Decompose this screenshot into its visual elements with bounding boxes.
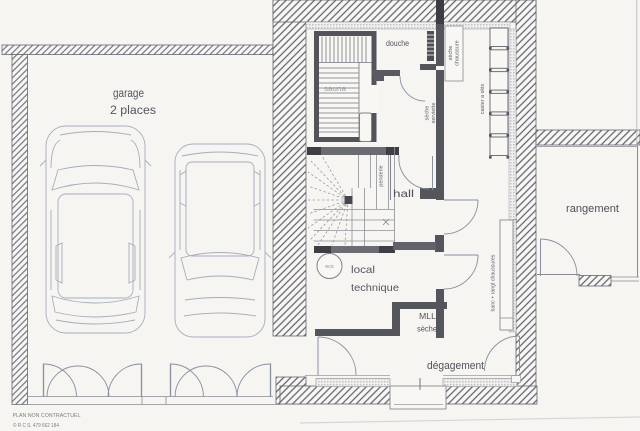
svg-text:dégagement: dégagement <box>427 360 484 372</box>
svg-text:rangement: rangement <box>566 203 619 215</box>
svg-text:2 places: 2 places <box>110 105 156 117</box>
svg-text:sèche: sèche <box>417 325 438 334</box>
svg-text:ecs: ecs <box>325 264 334 270</box>
svg-text:banc + rangt chaussures: banc + rangt chaussures <box>491 254 497 311</box>
svg-text:serviette: serviette <box>431 103 437 124</box>
svg-text:hall: hall <box>393 189 414 200</box>
svg-text:chaussure: chaussure <box>455 40 461 65</box>
svg-text:garage: garage <box>113 88 144 100</box>
svg-text:sèche: sèche <box>425 106 431 121</box>
svg-text:local: local <box>351 264 375 276</box>
svg-text:MLL: MLL <box>419 312 437 321</box>
svg-text:technique: technique <box>351 282 399 294</box>
svg-text:© R C S. 479 662 184: © R C S. 479 662 184 <box>13 422 59 429</box>
svg-text:douche: douche <box>386 38 409 48</box>
svg-text:PLAN NON CONTRACTUEL: PLAN NON CONTRACTUEL <box>13 413 81 419</box>
svg-text:sauna: sauna <box>324 84 347 93</box>
svg-text:penderie: penderie <box>379 165 385 186</box>
svg-text:casier a skis: casier a skis <box>480 84 486 115</box>
svg-text:sèche: sèche <box>448 46 454 61</box>
